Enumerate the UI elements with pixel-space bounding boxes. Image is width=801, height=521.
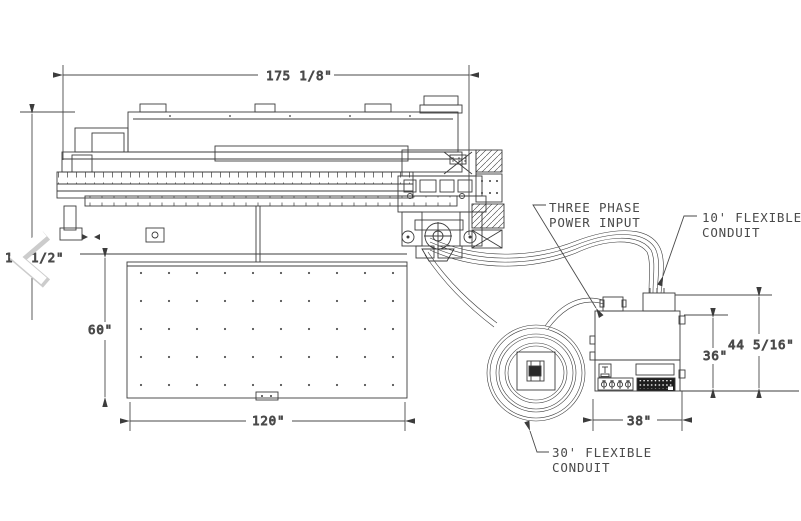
conduit-entry-box bbox=[643, 293, 675, 311]
callout-10ft-conduit: 10' FLEXIBLE CONDUIT bbox=[663, 210, 801, 276]
machine-side-view bbox=[57, 96, 462, 262]
callout-10ft-line2: CONDUIT bbox=[702, 225, 760, 240]
callout-10ft-line1: 10' FLEXIBLE bbox=[702, 210, 801, 225]
dim-cabinet-width: 38" bbox=[593, 391, 682, 431]
plug-connector-icon bbox=[609, 380, 614, 389]
vacuum-table bbox=[127, 262, 407, 400]
disconnect-switch bbox=[599, 364, 611, 377]
dim-cabinet-door-height-text: 36" bbox=[703, 348, 728, 363]
callout-30ft-line2: CONDUIT bbox=[552, 460, 610, 475]
dim-left-height: 1 1/2" bbox=[5, 112, 75, 320]
callout-three-phase-power: THREE PHASE POWER INPUT bbox=[533, 200, 641, 308]
callout-three-phase-line1: THREE PHASE bbox=[549, 200, 641, 215]
dim-overall-length-text: 175 1/8" bbox=[266, 68, 333, 83]
dim-table-depth-text: 60" bbox=[88, 322, 113, 337]
machine-installation-drawing: 175 1/8" 1 1/2" 60" 120" 36" 44 5/16" bbox=[0, 0, 801, 521]
dim-table-length: 120" bbox=[130, 402, 405, 431]
dim-cabinet-overall-height: 44 5/16" bbox=[675, 295, 795, 388]
plug-connector-icon bbox=[601, 380, 606, 389]
dim-cabinet-door-height: 36" bbox=[684, 315, 728, 388]
plug-connector-icon bbox=[625, 380, 630, 389]
cad-drawing-page: 175 1/8" 1 1/2" 60" 120" 36" 44 5/16" bbox=[0, 0, 801, 521]
dim-table-depth: 60" bbox=[88, 258, 113, 397]
plug-connector-icon bbox=[617, 380, 622, 389]
callout-three-phase-line2: POWER INPUT bbox=[549, 215, 641, 230]
callout-30ft-line1: 30' FLEXIBLE bbox=[552, 445, 652, 460]
coil-center-connector bbox=[517, 352, 555, 390]
dim-left-height-suffix: 1/2" bbox=[31, 250, 64, 265]
dim-cabinet-overall-height-text: 44 5/16" bbox=[728, 337, 795, 352]
callout-30ft-conduit: 30' FLEXIBLE CONDUIT bbox=[530, 431, 652, 475]
connector-panel bbox=[598, 378, 633, 390]
dim-cabinet-width-text: 38" bbox=[627, 413, 652, 428]
dim-table-length-text: 120" bbox=[252, 413, 285, 428]
cabinet-slot bbox=[636, 364, 674, 375]
terminal-strip bbox=[637, 378, 675, 391]
